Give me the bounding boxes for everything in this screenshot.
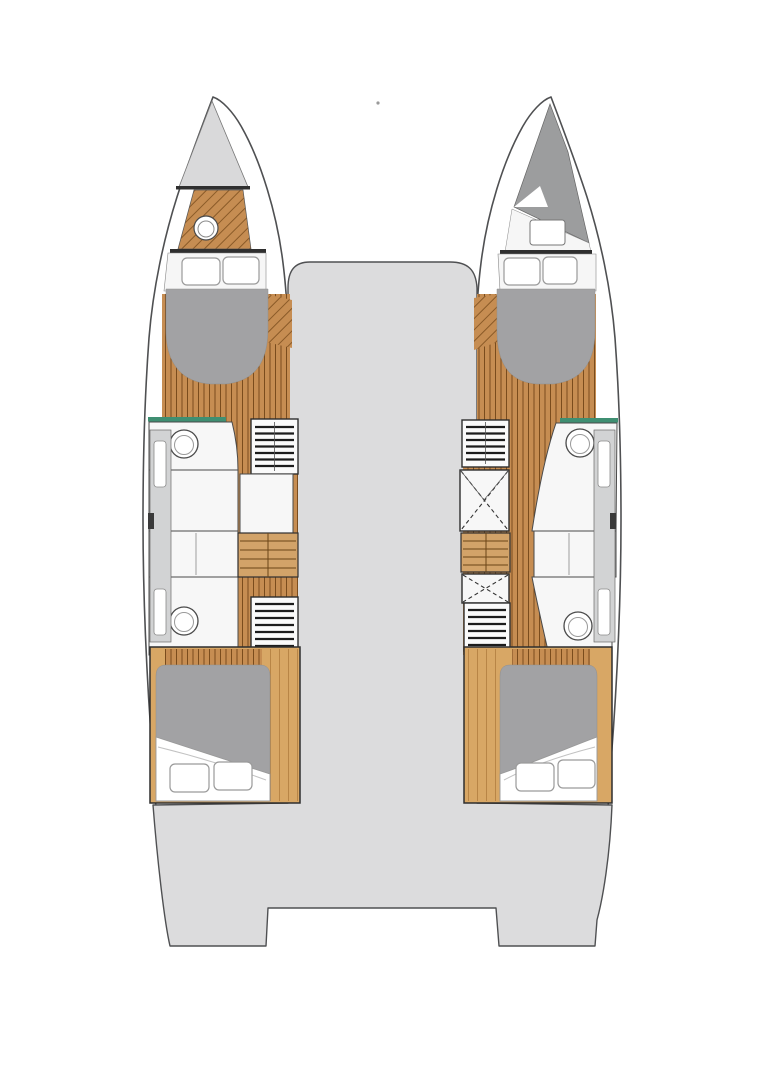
floorplan-canvas	[0, 0, 764, 1080]
locker-compartment	[240, 474, 293, 533]
pillow	[543, 257, 577, 284]
starboard-aft-cabin	[464, 647, 612, 803]
bow-hatch	[530, 220, 565, 245]
forward-cabin-bulkhead	[500, 250, 592, 254]
hanger-rails	[255, 604, 294, 646]
hull-fitting	[610, 513, 616, 529]
pillow	[516, 763, 554, 791]
shower-screen	[560, 418, 618, 423]
forward-berth-mattress	[497, 289, 595, 384]
pillow	[223, 257, 259, 284]
pillow	[182, 258, 220, 285]
hull-window	[598, 589, 610, 635]
aft-cabin-side-grain	[268, 649, 298, 801]
port-hull-interior	[148, 101, 300, 803]
forward-cabin-bulkhead	[170, 249, 266, 253]
forepeak-bulkhead	[176, 186, 250, 190]
mast-step-dot	[376, 101, 379, 104]
pillow	[170, 764, 209, 792]
wood-wedge	[474, 294, 498, 350]
hull-window	[154, 589, 166, 635]
hull-window	[154, 441, 166, 487]
port-aft-cabin	[150, 647, 300, 803]
pillow	[214, 762, 252, 790]
hull-fitting	[148, 513, 154, 529]
wood-wedge	[266, 294, 292, 348]
floorplan-page	[0, 0, 764, 1080]
hull-window	[598, 441, 610, 487]
aft-cabin-side-grain	[466, 649, 498, 801]
forward-berth-mattress	[166, 289, 268, 384]
shower-screen	[148, 417, 226, 422]
starboard-hull-interior	[460, 104, 618, 803]
pillow	[558, 760, 595, 788]
pillow	[504, 258, 540, 285]
